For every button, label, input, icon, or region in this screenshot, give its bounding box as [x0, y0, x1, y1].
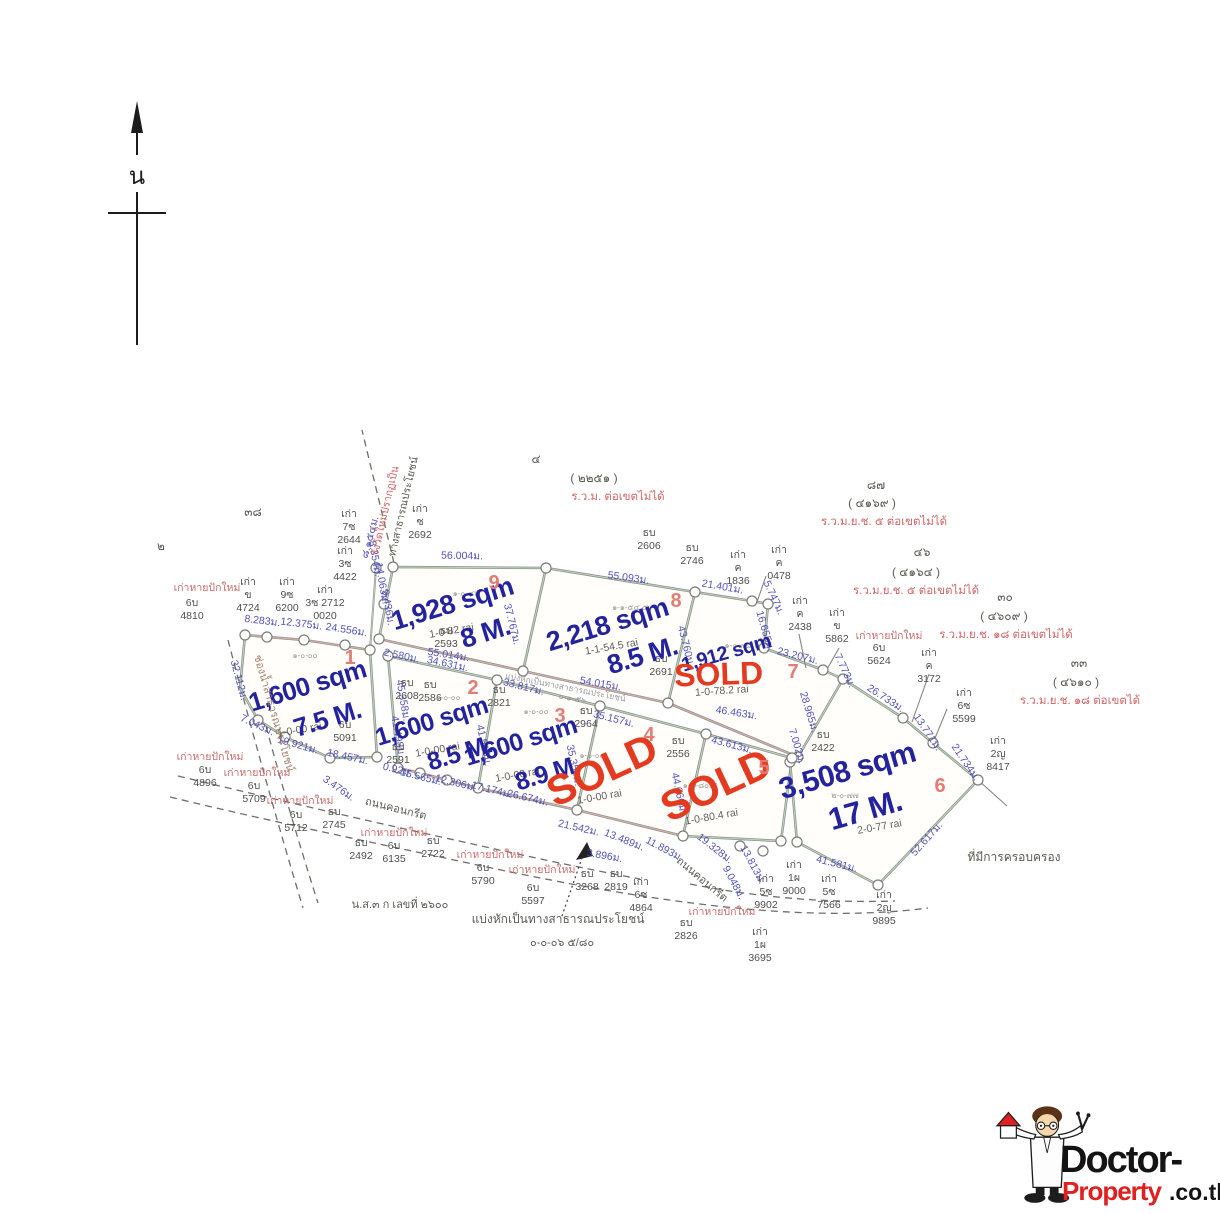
svg-text:ธบ: ธบ [671, 735, 684, 747]
svg-text:ธบ: ธบ [816, 729, 829, 741]
svg-text:ธบ: ธบ [685, 542, 698, 554]
distance-label: 21.542ม. [557, 818, 601, 839]
marker-label: 6บ5709 [242, 780, 266, 805]
svg-text:6บ: 6บ [199, 764, 212, 776]
svg-text:ค: ค [775, 557, 782, 569]
restaked-label: เก่าหายปักใหม่ [267, 794, 334, 807]
possession-note: ที่มีการครอบครอง [967, 848, 1060, 864]
restaked-label: เก่าหายปักใหม่ [509, 863, 576, 876]
svg-text:ค: ค [796, 608, 803, 620]
parcel-number: ๓๘ [244, 505, 261, 519]
svg-text:6บ: 6บ [186, 597, 199, 609]
marker-label: 6บ4810 [180, 597, 204, 622]
distance-label: 56.004ม. [441, 550, 483, 563]
marker-label: ธบ2492 [349, 837, 373, 862]
svg-text:ธบ: ธบ [679, 917, 692, 929]
marker-label: เก่าค0478 [767, 544, 791, 582]
svg-text:6บ: 6บ [873, 642, 886, 654]
svg-text:2492: 2492 [349, 850, 373, 862]
distance-label: 3.896ม. [586, 847, 624, 865]
svg-text:เก่า: เก่า [956, 687, 972, 699]
marker-label: เก่า9ซ6200 [275, 576, 299, 614]
plot-number: 1 [344, 647, 355, 669]
svg-text:3ซ 2712: 3ซ 2712 [305, 597, 344, 609]
svg-text:เก่า: เก่า [876, 889, 892, 901]
svg-text:6ซ: 6ซ [635, 889, 648, 901]
svg-text:5709: 5709 [242, 793, 266, 805]
svg-text:2606: 2606 [637, 540, 661, 552]
svg-text:6200: 6200 [275, 602, 299, 614]
svg-text:6บ: 6บ [290, 809, 303, 821]
svg-text:2722: 2722 [421, 848, 445, 860]
marker-label: เก่าค2438 [788, 595, 812, 633]
road-label: ถนนคอนกรีต [364, 795, 428, 823]
marker-label: เก่า7ซ2644 [337, 508, 361, 546]
restaked-label: เก่าหายปักใหม่ [361, 826, 428, 839]
svg-text:5091: 5091 [333, 732, 357, 744]
restaked-label: เก่าหายปักใหม่ [457, 848, 524, 861]
plot-number: 5 [758, 757, 769, 779]
svg-text:2556: 2556 [666, 748, 690, 760]
note-number: ๔ [531, 452, 540, 466]
svg-text:1ผ: 1ผ [788, 872, 800, 884]
svg-text:เก่า: เก่า [792, 595, 808, 607]
land-survey-page: น [0, 0, 1220, 1214]
north-arrow-icon: น [108, 101, 166, 345]
marker-label: เก่า5ซ7566 [817, 873, 841, 911]
svg-text:5712: 5712 [284, 822, 308, 834]
svg-text:เก่า: เก่า [633, 876, 649, 888]
marker-label: เก่า2ญ9895 [872, 889, 896, 927]
svg-text:2438: 2438 [788, 621, 812, 633]
logo-brand-line2: Property [1062, 1176, 1162, 1206]
svg-text:7ซ: 7ซ [343, 521, 356, 533]
marker-label: เก่าค3172 [917, 647, 941, 685]
svg-text:ค: ค [734, 562, 741, 574]
svg-text:เก่า: เก่า [240, 576, 256, 588]
svg-text:6บ: 6บ [248, 780, 261, 792]
svg-text:2746: 2746 [680, 555, 704, 567]
svg-text:1836: 1836 [726, 575, 750, 587]
svg-text:ธบ: ธบ [400, 677, 413, 689]
svg-text:2821: 2821 [487, 697, 511, 709]
note-number: ๓๐ [997, 590, 1013, 604]
svg-text:เก่า: เก่า [990, 735, 1006, 747]
svg-text:2745: 2745 [322, 819, 346, 831]
marker-label: เก่า6ซ5599 [952, 687, 976, 725]
note-code: ( ๔๑๖๔ ) [892, 565, 940, 579]
survey-map: น [0, 0, 1220, 1214]
plot-number: 2 [467, 677, 478, 699]
svg-text:2ญ: 2ญ [877, 902, 892, 914]
svg-text:5ซ: 5ซ [823, 886, 836, 898]
plot-area-thai: ๑-๐-๐๐ [523, 707, 548, 716]
plot-area-thai: ๑-๐-๐๐ [292, 651, 317, 660]
marker-label: 6บ4896 [193, 764, 217, 789]
svg-text:เก่า: เก่า [730, 549, 746, 561]
svg-text:9902: 9902 [754, 899, 778, 911]
svg-text:เก่า: เก่า [337, 545, 353, 557]
marker-label: เก่า3ซ 27120020 [305, 584, 344, 622]
svg-text:ธบ: ธบ [426, 835, 439, 847]
svg-text:5624: 5624 [867, 655, 891, 667]
marker-label: 6บ5712 [284, 809, 308, 834]
note-code: ( ๔๖๐๙ ) [980, 609, 1027, 623]
svg-text:4810: 4810 [180, 610, 204, 622]
marker-label: 6บ5624 [867, 642, 891, 667]
svg-text:ข: ข [833, 620, 840, 632]
note-number: ๓๓ [1071, 656, 1087, 670]
parcel-number: ๒ [157, 539, 165, 553]
marker-label: 6บ5597 [521, 882, 545, 907]
plot-number: 7 [787, 661, 798, 683]
marker-label: 6บ6135 [382, 840, 406, 865]
note-code: ( ๔๖๑๐ ) [1053, 675, 1099, 689]
svg-text:3268: 3268 [575, 881, 599, 893]
svg-text:ธบ: ธบ [579, 705, 592, 717]
svg-text:0020: 0020 [313, 610, 337, 622]
distance-label: 8.283ม. [244, 613, 281, 629]
svg-text:9ซ: 9ซ [281, 589, 294, 601]
svg-text:เก่า: เก่า [279, 576, 295, 588]
marker-label: เก่า2ญ8417 [986, 735, 1010, 773]
svg-text:ธบ: ธบ [580, 868, 593, 880]
svg-text:2692: 2692 [408, 529, 432, 541]
svg-text:5790: 5790 [471, 875, 495, 887]
svg-text:6135: 6135 [382, 853, 406, 865]
svg-text:เก่า: เก่า [829, 607, 845, 619]
svg-text:2608: 2608 [395, 690, 419, 702]
svg-text:1ผ: 1ผ [754, 939, 766, 951]
doctor-property-logo: Doctor- Property .co.th [997, 1106, 1220, 1206]
note-text: ร.ว.ม.ย.ช. ๑๘ ต่อเขตไม่ได้ [939, 628, 1073, 641]
sold-stamp: SOLD [674, 654, 764, 693]
svg-text:5597: 5597 [521, 895, 545, 907]
note-text: ร.ว.ม.ย.ช. ๕ ต่อเขตไม่ได้ [853, 584, 979, 597]
deed-number: น.ส.๓ ก เลขที่ ๒๖๐๐ [352, 896, 449, 911]
note-number: ๔๖ [914, 545, 931, 559]
svg-text:ธบ: ธบ [492, 684, 505, 696]
logo-brand-line1: Doctor- [1060, 1139, 1182, 1181]
restaked-label: เก่าหายปักใหม่ [856, 629, 923, 642]
svg-text:2ญ: 2ญ [991, 748, 1006, 760]
svg-text:6ซ: 6ซ [958, 700, 971, 712]
svg-text:2422: 2422 [811, 742, 835, 754]
marker-label: เก่าข5862 [825, 607, 849, 645]
svg-text:9895: 9895 [872, 915, 896, 927]
svg-text:เก่า: เก่า [786, 859, 802, 871]
svg-text:8417: 8417 [986, 761, 1010, 773]
marker-label: เก่า1ผ9000 [782, 859, 806, 897]
marker-label: ธบ2746 [680, 542, 704, 567]
marker-label: 6บ5790 [471, 862, 495, 887]
svg-text:6บ: 6บ [477, 862, 490, 874]
note-text: ร.ว.ม.ย.ช. ๕ ต่อเขตไม่ได้ [821, 515, 947, 528]
restaked-label: เก่าหายปักใหม่ [689, 905, 756, 918]
svg-text:เก่า: เก่า [412, 503, 428, 515]
svg-text:ธบ: ธบ [609, 868, 622, 880]
restaked-label: เก่าหายปักใหม่ [224, 766, 291, 779]
plot-number: 4 [643, 724, 655, 746]
svg-text:3ซ: 3ซ [339, 558, 352, 570]
svg-text:เก่า: เก่า [821, 873, 837, 885]
svg-text:6บ: 6บ [388, 840, 401, 852]
marker-label: เก่า1ผ3695 [748, 926, 772, 964]
note-number: ๘๗ [867, 478, 885, 492]
svg-text:2591: 2591 [386, 754, 410, 766]
svg-text:9000: 9000 [782, 885, 806, 897]
logo-brand-tld: .co.th [1169, 1179, 1220, 1205]
marker-label: เก่า3ซ4422 [333, 545, 357, 583]
compass-label: น [129, 163, 145, 190]
plot-number: 3 [554, 705, 565, 727]
svg-text:2964: 2964 [574, 718, 598, 730]
marker-label: ธบ3268 [575, 868, 599, 893]
svg-text:ธบ: ธบ [327, 806, 340, 818]
svg-text:ข: ข [244, 589, 251, 601]
svg-text:0478: 0478 [767, 570, 791, 582]
plot-number: 9 [488, 572, 499, 594]
svg-text:3172: 3172 [917, 673, 941, 685]
divide-note-line2: ๐-๐-๐๖ ๕/๘๐ [530, 937, 594, 949]
restaked-label: เก่าหายปักใหม่ [177, 750, 244, 763]
svg-text:2819: 2819 [604, 881, 628, 893]
marker-label: เก่าซ2692 [408, 503, 432, 541]
svg-text:4724: 4724 [236, 602, 260, 614]
marker-label: ธบ2745 [322, 806, 346, 831]
svg-text:เก่า: เก่า [758, 873, 774, 885]
svg-text:5599: 5599 [952, 713, 976, 725]
restaked-label: เก่าหายปักใหม่ [174, 581, 241, 594]
svg-text:2826: 2826 [674, 930, 698, 942]
marker-label: เก่า5ซ9902 [754, 873, 778, 911]
distance-label: 24.556ม. [325, 621, 368, 639]
svg-text:4896: 4896 [193, 777, 217, 789]
svg-text:เก่า: เก่า [771, 544, 787, 556]
distance-label: 13.489ม. [602, 827, 645, 854]
svg-text:6บ: 6บ [527, 882, 540, 894]
marker-label: เก่าค1836 [726, 549, 750, 587]
svg-text:เก่า: เก่า [341, 508, 357, 520]
marker-label: ธบ2819 [604, 868, 628, 893]
house-icon [997, 1113, 1020, 1139]
svg-text:3695: 3695 [748, 952, 772, 964]
stethoscope-icon [1076, 1112, 1090, 1129]
svg-text:7566: 7566 [817, 899, 841, 911]
svg-text:ธบ: ธบ [423, 679, 436, 691]
note-text: ร.ว.ม. ต่อเขตไม่ได้ [571, 490, 664, 503]
svg-text:ซ: ซ [416, 516, 423, 528]
divide-note-line1: แบ่งหักเป็นทางสาธารณประโยชน์ [472, 911, 645, 926]
svg-text:ธบ: ธบ [642, 527, 655, 539]
marker-label: ธบ2606 [637, 527, 661, 552]
note-code: ( ๒๒๕๑ ) [570, 471, 617, 485]
svg-text:5862: 5862 [825, 633, 849, 645]
svg-text:เก่า: เก่า [921, 647, 937, 659]
svg-text:4422: 4422 [333, 571, 357, 583]
svg-text:เก่า: เก่า [752, 926, 768, 938]
note-code: ( ๔๑๖๙ ) [848, 496, 896, 510]
marker-label: ธบ2826 [674, 917, 698, 942]
plot-number: 6 [934, 775, 945, 797]
plot-number: 8 [670, 590, 681, 612]
svg-text:เก่า: เก่า [317, 584, 333, 596]
svg-text:ค: ค [925, 660, 932, 672]
svg-text:5ซ: 5ซ [760, 886, 773, 898]
svg-text:2593: 2593 [434, 638, 458, 650]
note-text: ร.ว.ม.ย.ช. ๑๘ ต่อเขตได้ [1020, 694, 1140, 707]
